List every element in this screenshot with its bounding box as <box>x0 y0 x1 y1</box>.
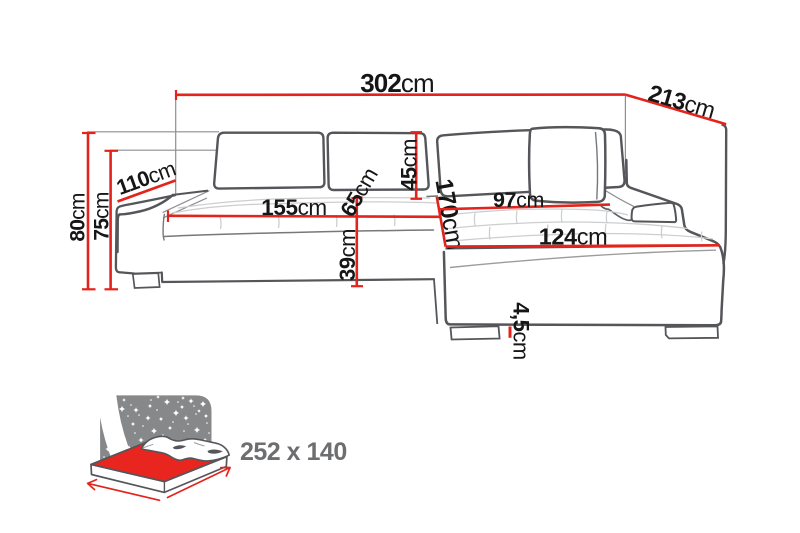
svg-text:4,5cm: 4,5cm <box>509 302 534 359</box>
svg-text:39cm: 39cm <box>335 229 360 281</box>
svg-text:75cm: 75cm <box>91 192 114 240</box>
svg-text:155cm: 155cm <box>261 195 327 220</box>
svg-text:97cm: 97cm <box>493 188 544 212</box>
svg-text:45cm: 45cm <box>397 139 422 191</box>
svg-text:124cm: 124cm <box>539 224 608 250</box>
svg-text:302cm: 302cm <box>360 68 434 98</box>
svg-text:213cm: 213cm <box>646 80 718 124</box>
svg-text:252 x 140: 252 x 140 <box>240 438 347 466</box>
svg-text:80cm: 80cm <box>67 193 90 241</box>
svg-text:110cm: 110cm <box>113 157 178 200</box>
